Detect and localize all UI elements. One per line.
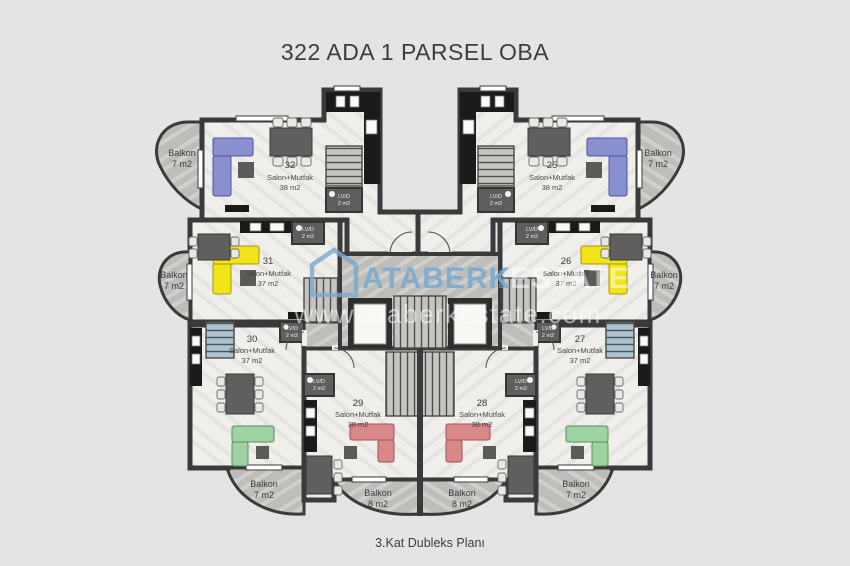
balcony-bottom-right-label: Balkon 7 m2 [562,479,590,500]
unit-32-stairs [326,146,362,186]
svg-text:7 m2: 7 m2 [172,159,192,169]
svg-text:LV/D: LV/D [302,227,314,233]
svg-text:Balkon: Balkon [562,479,590,489]
svg-text:38 m2: 38 m2 [472,420,493,429]
svg-text:Balkon: Balkon [364,488,392,498]
floor-plan-page: 322 ADA 1 PARSEL OBA 3.Kat Dubleks Planı… [0,0,850,566]
svg-text:7 m2: 7 m2 [164,281,184,291]
svg-text:37 m2: 37 m2 [242,356,263,365]
balcony-mid-right-label: Balkon 7 m2 [650,270,678,291]
page-title: 322 ADA 1 PARSEL OBA [281,39,549,65]
svg-text:Balkon: Balkon [650,270,678,280]
balcony-bottom-center-left-label: Balkon 8 m2 [364,488,392,509]
balcony-bottom-left-label: Balkon 7 m2 [250,479,278,500]
svg-text:LV/D: LV/D [515,379,527,385]
svg-text:2 m2: 2 m2 [313,386,325,392]
svg-text:2 m2: 2 m2 [542,333,554,339]
svg-text:Salon+Mutfak: Salon+Mutfak [459,410,505,419]
svg-text:31: 31 [263,256,274,267]
svg-text:38 m2: 38 m2 [542,183,563,192]
watermark-brand: ATABERK [362,262,511,295]
svg-text:Salon+Mutfak: Salon+Mutfak [335,410,381,419]
unit-29-stairs [386,352,418,416]
svg-text:7 m2: 7 m2 [648,159,668,169]
svg-text:29: 29 [353,398,364,409]
svg-text:2 m2: 2 m2 [286,333,298,339]
svg-text:Salon+Mutfak: Salon+Mutfak [267,173,313,182]
svg-text:LV/D: LV/D [313,379,325,385]
balcony-bottom-center-right-label: Balkon 8 m2 [448,488,476,509]
svg-text:Balkon: Balkon [644,148,672,158]
svg-text:30: 30 [247,334,258,345]
svg-text:8 m2: 8 m2 [368,499,388,509]
floor-plan-canvas: 322 ADA 1 PARSEL OBA 3.Kat Dubleks Planı… [0,0,850,566]
svg-text:37 m2: 37 m2 [258,279,279,288]
svg-text:7 m2: 7 m2 [254,490,274,500]
svg-text:2 m2: 2 m2 [515,386,527,392]
svg-text:Salon+Mutfak: Salon+Mutfak [529,173,575,182]
svg-text:2 m2: 2 m2 [490,201,502,207]
watermark-url: www.ataberkestate.com [293,299,602,329]
svg-text:27: 27 [575,334,586,345]
center-divider-wall [417,348,423,516]
watermark-brand-secondary: ESTATE [510,262,630,295]
svg-text:2 m2: 2 m2 [526,234,538,240]
svg-text:Salon+Mutfak: Salon+Mutfak [229,346,275,355]
svg-text:Balkon: Balkon [168,148,196,158]
svg-text:Balkon: Balkon [250,479,278,489]
svg-text:7 m2: 7 m2 [566,490,586,500]
svg-text:7 m2: 7 m2 [654,281,674,291]
svg-text:25: 25 [547,160,558,171]
svg-text:LV/D: LV/D [526,227,538,233]
svg-text:37 m2: 37 m2 [570,356,591,365]
svg-text:LV/D: LV/D [490,194,502,200]
svg-text:Salon+Mutfak: Salon+Mutfak [245,269,291,278]
svg-text:LV/D: LV/D [338,194,350,200]
plan-caption: 3.Kat Dubleks Planı [375,536,485,550]
tv-console [225,205,249,212]
svg-text:2 m2: 2 m2 [302,234,314,240]
svg-text:28: 28 [477,398,488,409]
svg-text:8 m2: 8 m2 [452,499,472,509]
svg-text:Balkon: Balkon [448,488,476,498]
svg-text:32: 32 [285,160,296,171]
watermark-vertical-text: REAL [497,267,506,288]
balcony-mid-left-label: Balkon 7 m2 [160,270,188,291]
svg-text:38 m2: 38 m2 [280,183,301,192]
svg-text:2 m2: 2 m2 [338,201,350,207]
balcony-top-right-label: Balkon 7 m2 [644,148,672,169]
balcony-top-left-label: Balkon 7 m2 [168,148,196,169]
svg-text:Balkon: Balkon [160,270,188,280]
svg-text:Salon+Mutfak: Salon+Mutfak [557,346,603,355]
svg-text:38 m2: 38 m2 [348,420,369,429]
